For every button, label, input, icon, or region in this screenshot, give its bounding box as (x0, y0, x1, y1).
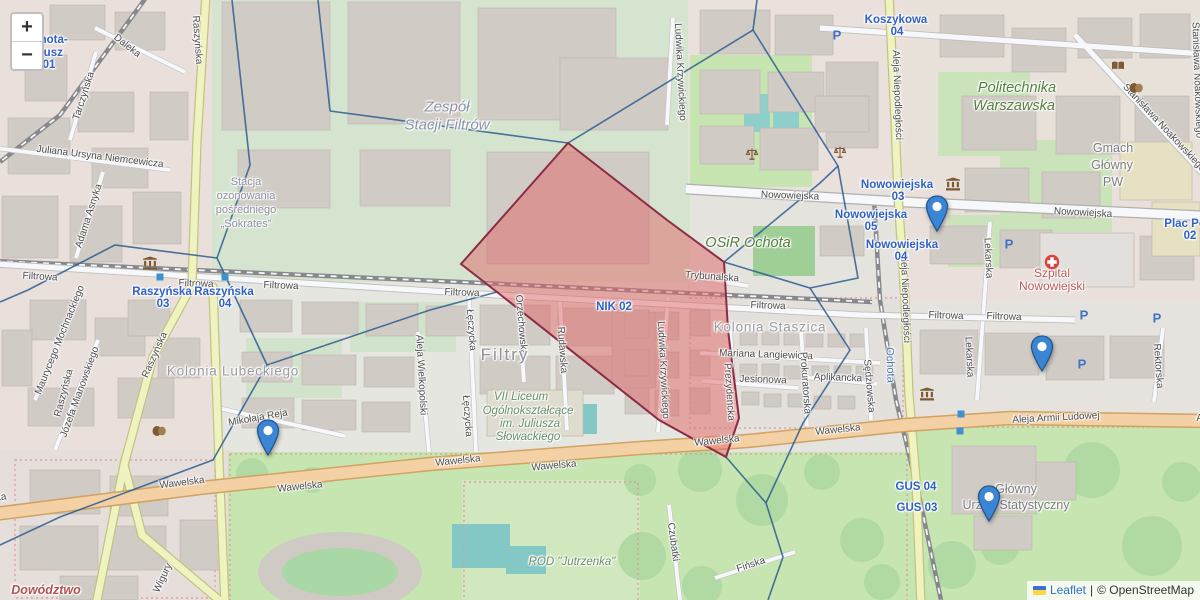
map-marker[interactable] (977, 485, 1001, 523)
map-canvas[interactable]: DalekaTarczyńskaRaszyńskaJuliana Ursyna … (0, 0, 1200, 600)
leaflet-attribution-link[interactable]: Leaflet (1050, 583, 1086, 597)
voronoi-cell-edge (726, 457, 766, 503)
attribution-bar: Leaflet | © OpenStreetMap (1027, 581, 1200, 600)
zoom-control: + − (10, 12, 44, 71)
zoom-out-button[interactable]: − (12, 42, 42, 69)
voronoi-cell-edge (267, 292, 497, 365)
voronoi-cell-edge (0, 365, 267, 545)
voronoi-cell-edge (318, 0, 330, 111)
map-marker[interactable] (256, 419, 280, 457)
attribution-separator: | (1090, 583, 1093, 597)
osm-attribution-link[interactable]: © OpenStreetMap (1097, 583, 1194, 597)
voronoi-cell-edge (753, 30, 838, 166)
map-marker[interactable] (1030, 335, 1054, 373)
highlighted-zone-polygon[interactable] (461, 143, 739, 457)
voronoi-cell-edge (724, 262, 810, 288)
voronoi-cell-edge (766, 503, 783, 600)
map-overlay (0, 0, 1200, 600)
ukraine-flag-icon (1033, 586, 1046, 595)
map-marker[interactable] (925, 195, 949, 233)
voronoi-cell-edge (0, 245, 217, 302)
voronoi-cell-edge (724, 166, 838, 262)
voronoi-cell-edge (217, 258, 267, 365)
zoom-in-button[interactable]: + (12, 14, 42, 42)
voronoi-cell-edge (568, 0, 757, 143)
voronoi-cell-edge (217, 0, 250, 258)
voronoi-cell-edge (330, 111, 568, 143)
